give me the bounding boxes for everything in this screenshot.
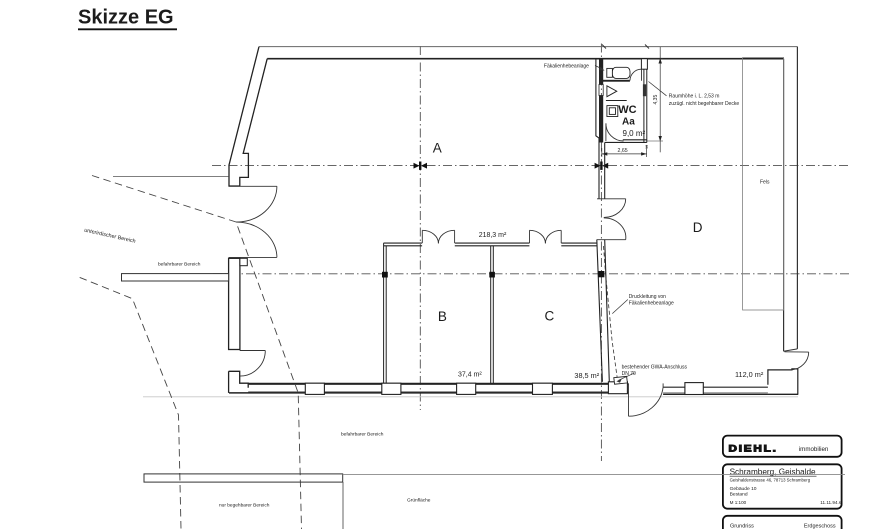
svg-text:M 1:100: M 1:100 [730, 500, 747, 505]
svg-text:Grundriss: Grundriss [730, 524, 754, 529]
svg-text:B: B [438, 309, 447, 324]
svg-text:zuzügl. nicht begehbarer Decke: zuzügl. nicht begehbarer Decke [669, 101, 740, 107]
svg-text:112,0 m²: 112,0 m² [735, 370, 764, 379]
svg-text:immobilien: immobilien [799, 446, 829, 453]
svg-text:Fels: Fels [760, 180, 770, 186]
svg-text:218,3 m²: 218,3 m² [479, 232, 507, 239]
svg-text:9,0 m²: 9,0 m² [623, 129, 646, 138]
svg-text:Raumhöhe i. L. 2,53 m: Raumhöhe i. L. 2,53 m [669, 94, 720, 100]
svg-text:WC: WC [618, 104, 636, 116]
svg-text:2,65: 2,65 [618, 148, 628, 154]
svg-text:Fäkalienhebeanlage: Fäkalienhebeanlage [629, 300, 674, 306]
svg-text:Druckleitung von: Druckleitung von [629, 294, 666, 300]
svg-text:DIEHL.: DIEHL. [729, 444, 778, 453]
svg-text:Geishaldenstrasse 46, 78713 Sc: Geishaldenstrasse 46, 78713 Schramberg [730, 478, 811, 483]
svg-text:befahrbarer Bereich: befahrbarer Bereich [158, 261, 201, 267]
svg-text:D: D [693, 220, 703, 235]
svg-text:38,5 m²: 38,5 m² [574, 371, 599, 380]
svg-text:unterirdischer Bereich: unterirdischer Bereich [84, 228, 136, 245]
svg-text:Grünfläche: Grünfläche [407, 497, 431, 503]
svg-text:bestehender GWA-Anschluss: bestehender GWA-Anschluss [622, 365, 688, 371]
svg-text:C: C [545, 308, 555, 323]
svg-text:Aa: Aa [622, 116, 635, 127]
svg-text:4,35: 4,35 [653, 95, 659, 105]
svg-text:Schramberg, Geishalde: Schramberg, Geishalde [730, 467, 816, 476]
svg-text:11.11.94.s: 11.11.94.s [820, 500, 841, 505]
svg-text:befahrbarer Bereich: befahrbarer Bereich [341, 432, 384, 438]
svg-text:37,4 m²: 37,4 m² [458, 371, 482, 378]
svg-text:Gebäude 10: Gebäude 10 [730, 486, 757, 492]
svg-text:10: 10 [645, 145, 649, 149]
svg-text:Skizze EG: Skizze EG [78, 7, 174, 29]
svg-text:A: A [433, 141, 442, 156]
svg-text:Bestand: Bestand [730, 492, 748, 498]
svg-text:Erdgeschoss: Erdgeschoss [804, 524, 836, 529]
svg-text:Fäkalienhebeanlage: Fäkalienhebeanlage [544, 63, 589, 69]
svg-text:nur begehbarer Bereich: nur begehbarer Bereich [219, 502, 270, 508]
